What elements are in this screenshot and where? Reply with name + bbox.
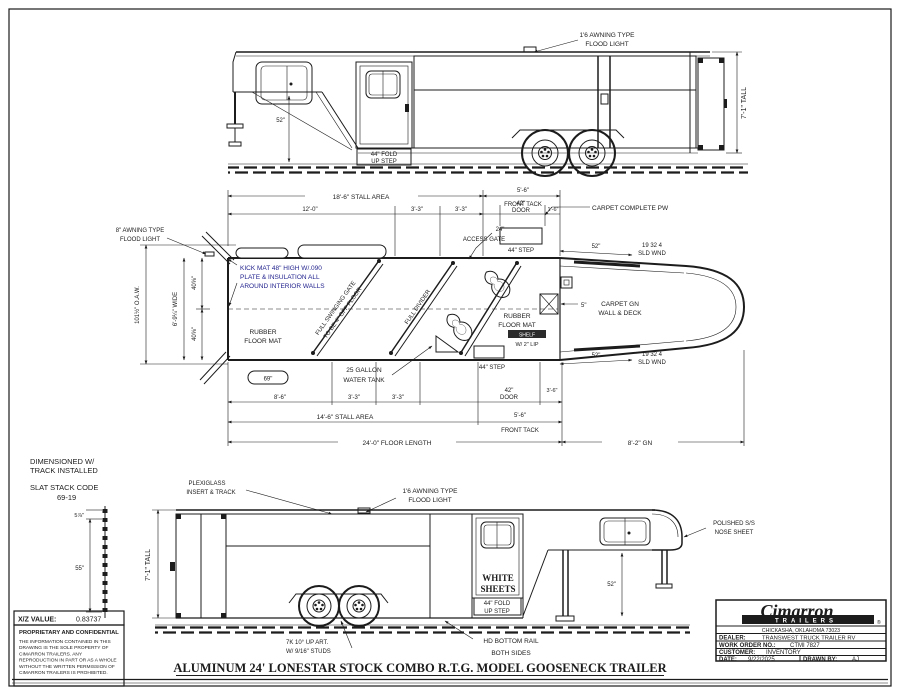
axle-label-2: W/ 9/16" STUDS: [286, 649, 331, 655]
rubber-mat-left-2: FLOOR MAT: [244, 338, 281, 345]
access-gate-label: ACCESS GATE: [463, 237, 505, 243]
dim-12-0: 12'-0": [302, 207, 317, 213]
water-tank-label-2: WATER TANK: [343, 377, 385, 384]
jack-foot: [556, 616, 574, 621]
top-elevation-view: 44" FOLD UP STEP 7: [227, 32, 748, 176]
proprietary-title: PROPRIETARY AND CONFIDENTIAL: [19, 630, 119, 636]
proprietary-line-5: WITHOUT THE WRITTEN PERMISSION OF: [19, 664, 115, 670]
drawing-title-text: ALUMINUM 24' LONESTAR STOCK COMBO R.T.G.…: [173, 661, 667, 675]
flood-light-label-2: FLOOD LIGHT: [585, 41, 628, 48]
height-label: 7'-1" TALL: [145, 549, 152, 581]
rubber-mat-left-1: RUBBER: [249, 329, 276, 336]
gn-window-bottom-dim: 52": [592, 353, 601, 359]
gn-clearance-label: 52": [276, 118, 285, 124]
tack-shelf: SHELF W/ 2" LIP: [508, 330, 546, 348]
slat-side-panel: [414, 90, 696, 148]
front-tack-bottom-dim: 5'-6": [514, 413, 526, 419]
full-swinging-gate: FULL SWINGING GATE TO BE 4" OFF FLOOR: [311, 259, 383, 356]
gn-window-bottom: 52" 19 32 4 SLD WND: [560, 346, 666, 366]
upper-rail-band: [226, 514, 430, 546]
carpet-gn-label-1: CARPET GN: [601, 301, 639, 308]
gooseneck: 52": [523, 510, 682, 621]
front-tack-bottom-label: FRONT TACK: [501, 428, 539, 434]
dim-3-6: 3'-6": [547, 388, 558, 394]
69-dimension: 69": [248, 371, 288, 384]
stall-area-top-label: 18'-6" STALL AREA: [333, 194, 390, 201]
proprietary-line-1: THE INFORMATION CONTAINED IN THIS: [19, 639, 111, 645]
drawing-title: ALUMINUM 24' LONESTAR STOCK COMBO R.T.G.…: [12, 661, 888, 683]
coupler-foot: [656, 584, 672, 588]
gn-window-top-dim: 52": [592, 244, 601, 250]
brand-band-text: TRAILERS: [775, 619, 837, 625]
slat-height-dim: 55": [75, 566, 84, 572]
awning-label-1: 8" AWNING TYPE: [116, 228, 164, 234]
gn-window-bottom-type: SLD WND: [638, 360, 666, 366]
flood-light-label-2: FLOOD LIGHT: [408, 497, 451, 504]
wide-label: 6'-9¼" WIDE: [173, 292, 179, 326]
rubber-mat-right-1: RUBBER: [503, 313, 530, 320]
fold-up-step: 44" FOLD UP STEP: [474, 598, 521, 615]
nose-sheet-label-1: POLISHED S/S: [713, 521, 755, 527]
rubber-mat-right-2: FLOOR MAT: [498, 322, 535, 329]
drawn-by-value: AJ: [852, 657, 859, 663]
slat-stack-diagram: DIMENSIONED W/ TRACK INSTALLED SLAT STAC…: [30, 457, 105, 618]
proprietary-line-3: CIMARRON TRAILERS. ANY: [19, 651, 83, 657]
title-block: Cimarron TRAILERS ® CHICKASHA, OKLAHOMA …: [716, 600, 886, 663]
work-order-value: CTMI 7827: [790, 643, 820, 649]
tack-wall-access-gate: [459, 261, 521, 356]
side-door: WHITE SHEETS: [472, 514, 523, 598]
proprietary-line-4: REPRODUCTION IN PART OR AS A WHOLE: [19, 658, 117, 664]
plexiglass-callout: PLEXIGLASS INSERT & TRACK: [186, 481, 332, 514]
drawn-by-label: DRAWN BY:: [803, 657, 837, 663]
half-width-bottom: 40⅝": [192, 327, 198, 341]
kick-mat-line-2: PLATE & INSULATION ALL: [240, 274, 320, 281]
dim-3-3-a: 3'-3": [411, 207, 423, 213]
carpet-pw-label: CARPET COMPLETE PW: [592, 205, 669, 212]
door-bottom-dim: 42": [505, 388, 514, 394]
gooseneck-outline: [560, 258, 744, 360]
rear-gate: [170, 514, 226, 618]
ac-unit: 5": [540, 277, 586, 314]
bottom-rail-label-2: BOTH SIDES: [491, 650, 531, 657]
xz-value-box: X/Z VALUE: 0.83737: [14, 611, 124, 625]
fold-up-step: 44" FOLD UP STEP: [357, 149, 411, 165]
flood-light-label-1: 1'6 AWNING TYPE: [402, 488, 458, 495]
door-top-label: DOOR: [512, 208, 531, 214]
rear-gate: [698, 58, 727, 150]
white-sheet-panel: [430, 514, 472, 618]
plexiglass-label-2: INSERT & TRACK: [186, 490, 235, 496]
dimensioned-note-2: TRACK INSTALLED: [30, 466, 98, 475]
shelf-label-1: SHELF: [519, 333, 535, 339]
height-dimension: 7'-1" TALL: [712, 52, 748, 153]
dim-8-6: 8'-6": [274, 395, 286, 401]
flood-light-label-1: 1'6 AWNING TYPE: [579, 32, 635, 39]
full-divider-gate: FULL DIVIDER: [389, 261, 457, 356]
saddle-rack: [480, 267, 514, 302]
stall-area-bottom-label: 14'-6" STALL AREA: [317, 414, 374, 421]
date-label: DATE:: [719, 657, 737, 663]
ac-offset-label: 5": [581, 303, 586, 309]
white-sheets-label-1: WHITE: [482, 573, 514, 583]
access-gate-dim: 24": [496, 227, 505, 233]
ground-hatch: [155, 625, 690, 635]
dim-1-6: 1'-6": [548, 207, 559, 213]
page-border: [9, 9, 891, 686]
dim-3-3-d: 3'-3": [392, 395, 404, 401]
fold-step-label-2: UP STEP: [371, 159, 397, 165]
fold-step-label-1: 44" FOLD: [484, 601, 511, 607]
ground-hatch: [228, 164, 748, 175]
street-side-step: 44" STEP: [500, 228, 542, 254]
door-top-dim: 42": [517, 201, 526, 207]
xz-value: 0.83737: [76, 617, 101, 624]
front-tack-top-dim: 5'-6": [517, 188, 529, 194]
gn-window-bottom-size: 19 32 4: [642, 352, 663, 358]
work-order-label: WORK ORDER NO.:: [719, 643, 776, 649]
slat-side-panel: [226, 546, 430, 618]
proprietary-line-6: CIMARRON TRAILERS IS PROHIBITED.: [19, 670, 108, 676]
side-door: [356, 62, 412, 148]
kick-mat-note: KICK MAT 48" HIGH W/.090 PLATE & INSULAT…: [228, 259, 325, 306]
dim-69-label: 69": [264, 377, 273, 383]
floor-plan-view: FULL SWINGING GATE TO BE 4" OFF FLOOR FU…: [116, 188, 744, 447]
white-sheets-label-2: SHEETS: [480, 584, 515, 594]
kick-mat-line-1: KICK MAT 48" HIGH W/.090: [240, 265, 322, 272]
nose-sheet-callout: POLISHED S/S NOSE SHEET: [684, 521, 755, 537]
saddle-rack: [442, 310, 476, 345]
axle-label-1: 7K 10° UP ART.: [286, 640, 329, 646]
nose-sheet-label-2: NOSE SHEET: [715, 530, 754, 536]
step-label-top: 44" STEP: [508, 248, 534, 254]
curb-side-step: 44" STEP: [474, 346, 505, 371]
flood-light-callout-top: 1'6 AWNING TYPE FLOOD LIGHT: [524, 32, 635, 52]
bottom-elevation-view: WHITE SHEETS 44" FOLD UP STEP 52": [145, 481, 755, 657]
polished-nose: [652, 510, 682, 550]
floor-length-label: 24'-0" FLOOR LENGTH: [363, 440, 432, 447]
plexiglass-label-1: PLEXIGLASS: [188, 481, 225, 487]
wall-mat: [236, 248, 288, 258]
awning-label-2: FLOOD LIGHT: [120, 237, 160, 243]
gn-clearance-dimension: 52": [276, 96, 289, 162]
upper-rail-band: [414, 56, 696, 90]
carpet-gn-label-2: WALL & DECK: [598, 310, 642, 317]
flood-light-fixture: [205, 252, 214, 256]
oaw-label: 101½" O.A.W.: [134, 286, 141, 324]
half-width-top: 40⅝": [192, 276, 198, 290]
shelf-label-2: W/ 2" LIP: [515, 342, 538, 348]
dimensioned-note-1: DIMENSIONED W/: [30, 457, 95, 466]
gooseneck-coupler: [227, 92, 243, 146]
gn-window-top-size: 19 32 4: [642, 243, 663, 249]
kick-mat-line-3: AROUND INTERIOR WALLS: [240, 283, 325, 290]
wall-mat: [298, 245, 386, 258]
gn-clearance-label: 52": [607, 582, 616, 588]
registered-mark: ®: [877, 619, 881, 626]
fold-step-label-2: UP STEP: [484, 609, 510, 615]
slat-code-label: SLAT STACK CODE: [30, 483, 98, 492]
proprietary-box: PROPRIETARY AND CONFIDENTIAL THE INFORMA…: [14, 625, 124, 686]
door-bottom-label: DOOR: [500, 395, 519, 401]
xz-label: X/Z VALUE:: [18, 617, 56, 624]
step-label-bottom: 44" STEP: [479, 365, 505, 371]
gn-window-top: 52" 19 32 4 SLD WND: [560, 243, 666, 266]
dim-3-3-c: 3'-3": [348, 395, 360, 401]
drawing-page: 44" FOLD UP STEP 7: [0, 0, 900, 695]
bottom-rail-label-1: HD BOTTOM RAIL: [483, 638, 539, 645]
height-label: 7'-1" TALL: [741, 87, 748, 119]
dim-3-3-b: 3'-3": [455, 207, 467, 213]
date-value: 9/22/2025: [748, 657, 775, 663]
gn-length-label: 8'-2" GN: [628, 440, 653, 447]
water-tank-label-1: 25 GALLON: [346, 367, 382, 374]
carpet-pw-callout: CARPET COMPLETE PW: [545, 205, 669, 215]
slat-top-dim: 5⅞": [74, 513, 84, 519]
slat-code-value: 69-19: [57, 493, 76, 502]
gooseneck-window: [256, 62, 312, 104]
wheels-bottom-view: [289, 586, 388, 626]
proprietary-line-2: DRAWING IS THE SOLE PROPERTY OF: [19, 645, 108, 651]
width-dimensions: 101½" O.A.W. 6'-9¼" WIDE 40⅝" 40⅝": [134, 245, 236, 364]
gn-window-top-type: SLD WND: [638, 251, 666, 257]
awning-light-callout-plan: 8" AWNING TYPE FLOOD LIGHT: [116, 228, 214, 256]
